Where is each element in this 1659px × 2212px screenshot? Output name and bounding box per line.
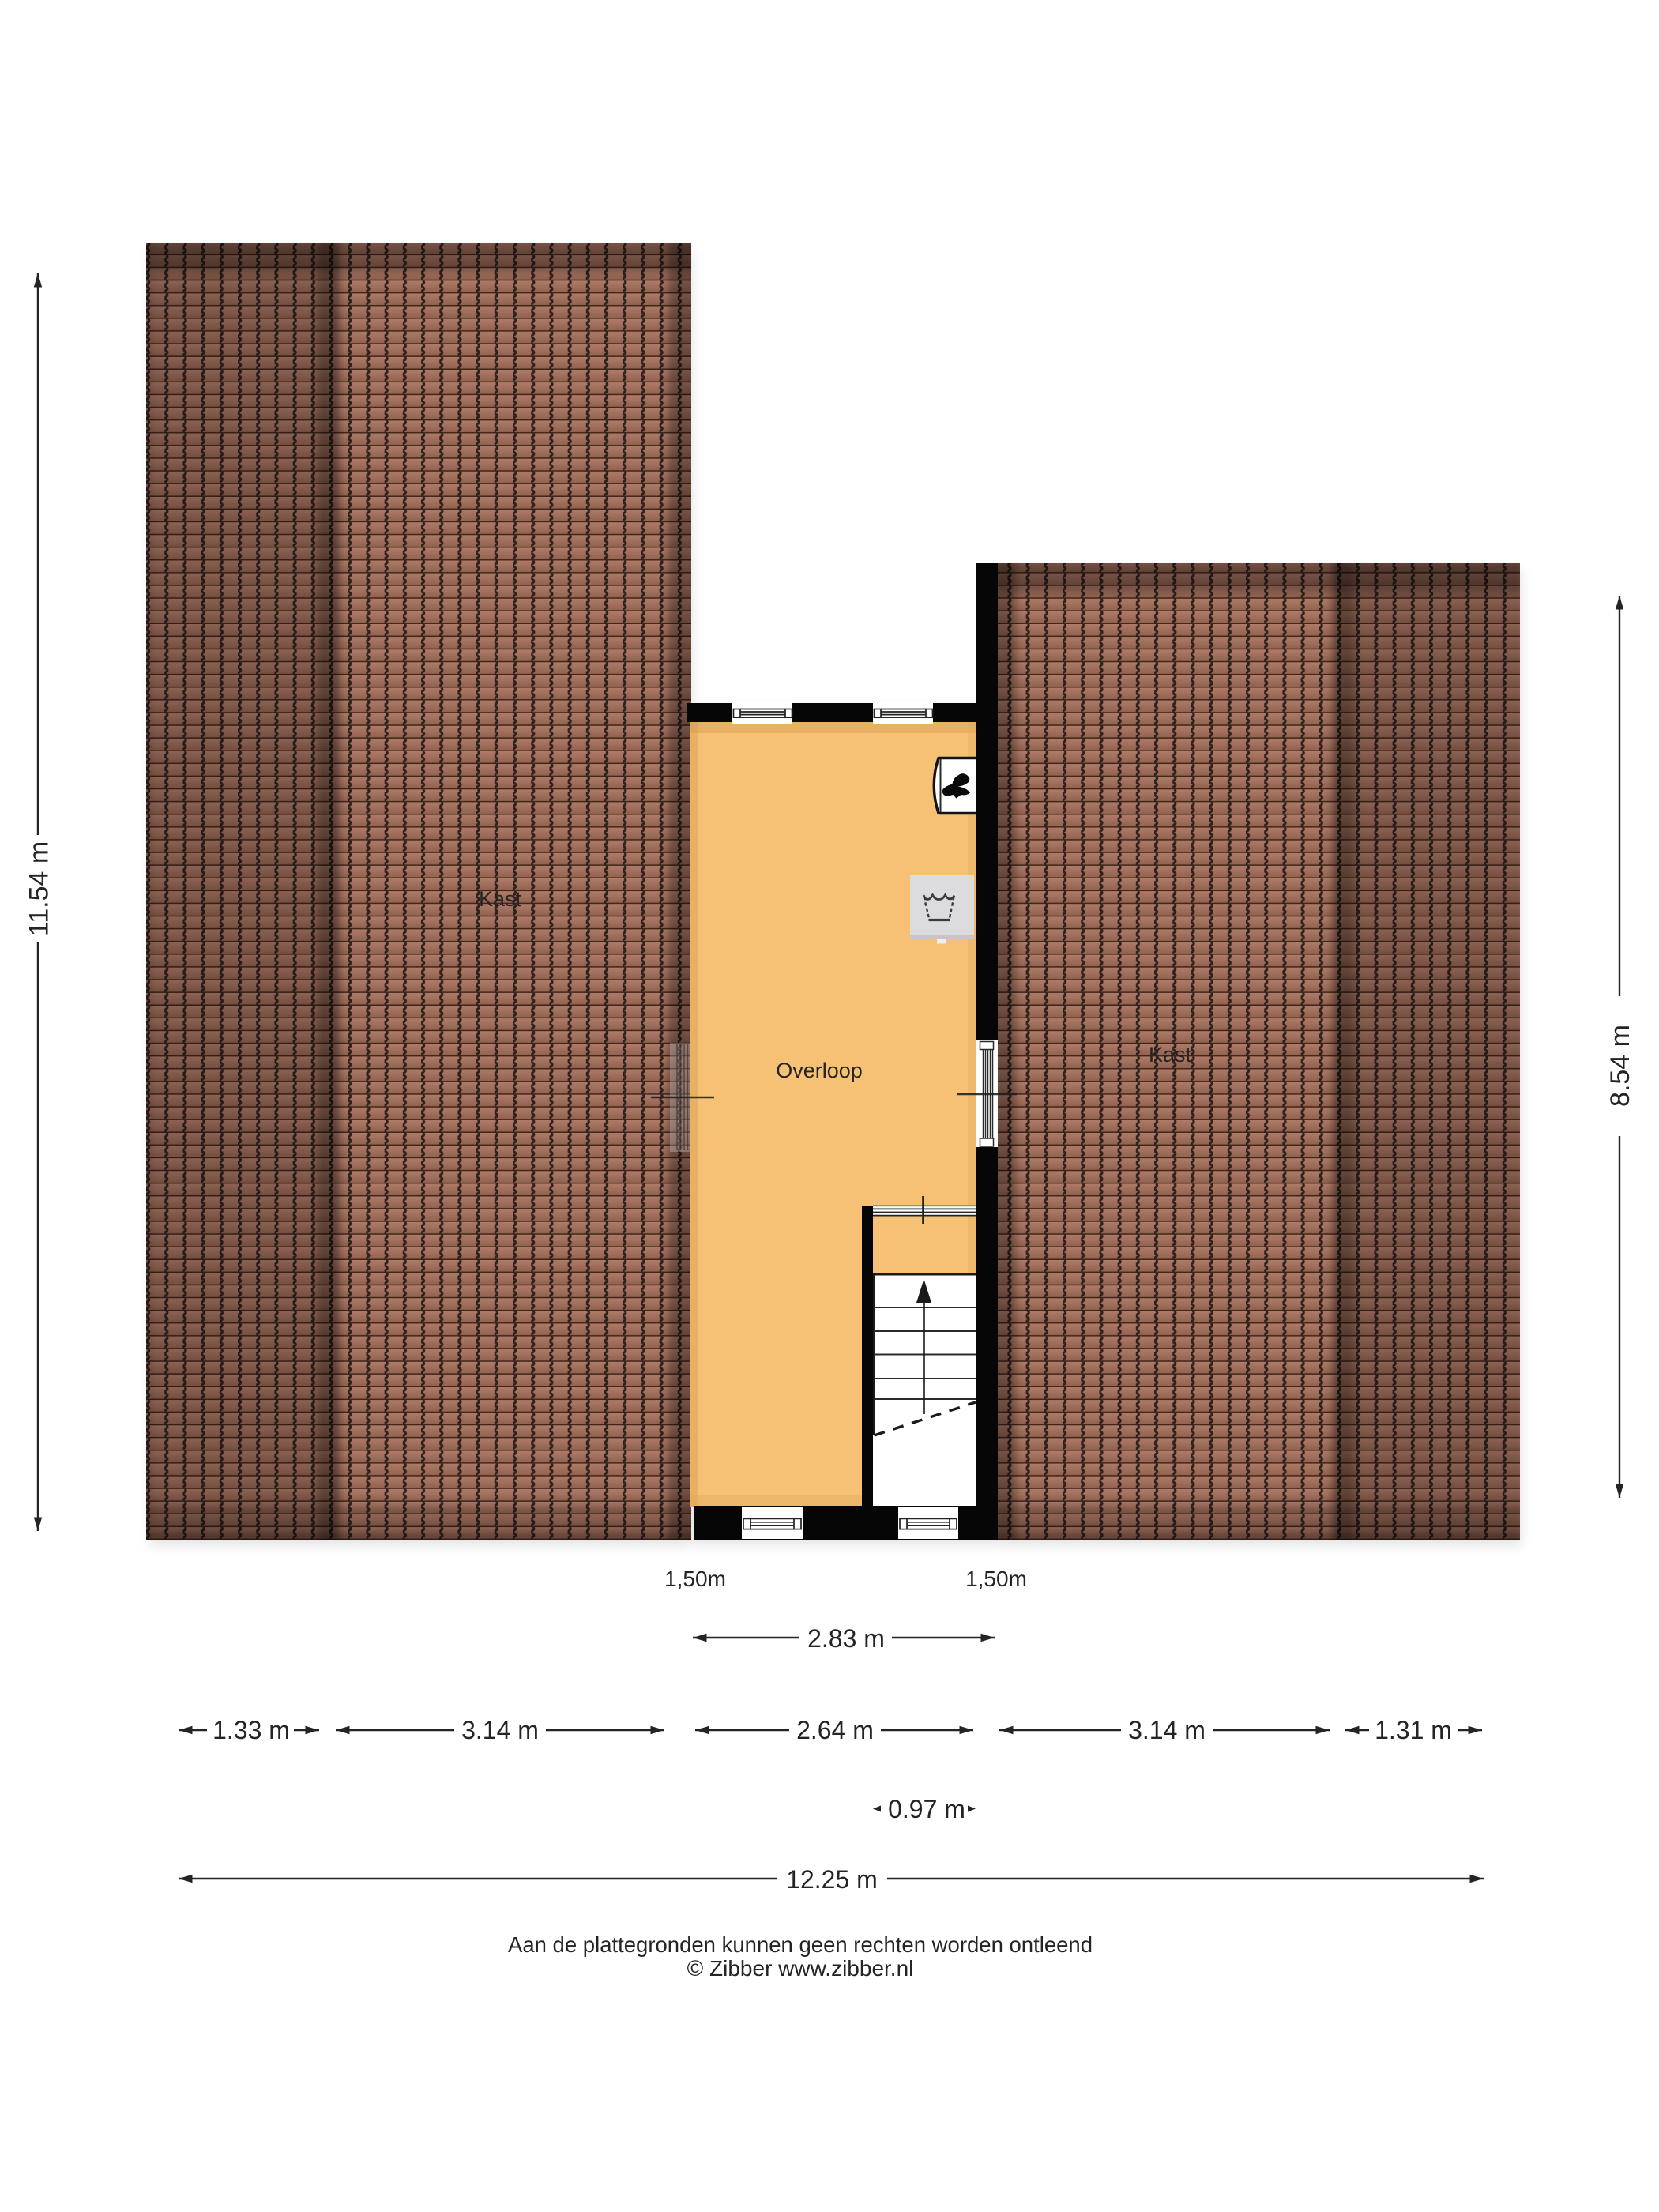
svg-text:3.14 m: 3.14 m (1128, 1716, 1206, 1744)
svg-text:Kast: Kast (1149, 1043, 1192, 1066)
svg-text:1.33 m: 1.33 m (213, 1716, 290, 1744)
svg-text:0.97 m: 0.97 m (888, 1795, 965, 1823)
svg-text:2.83 m: 2.83 m (807, 1624, 885, 1653)
svg-text:11.54 m: 11.54 m (24, 841, 55, 936)
svg-text:© Zibber www.zibber.nl: © Zibber www.zibber.nl (687, 1956, 914, 1981)
svg-text:1,50m: 1,50m (664, 1567, 726, 1591)
svg-text:12.25 m: 12.25 m (786, 1865, 878, 1894)
svg-text:1.31 m: 1.31 m (1375, 1716, 1452, 1744)
svg-text:Aan de plattegronden kunnen ge: Aan de plattegronden kunnen geen rechten… (508, 1932, 1093, 1957)
svg-text:1,50m: 1,50m (965, 1567, 1027, 1591)
svg-text:Kast: Kast (479, 887, 522, 911)
svg-text:Overloop: Overloop (776, 1059, 863, 1082)
svg-text:3.14 m: 3.14 m (461, 1716, 539, 1744)
svg-text:2.64 m: 2.64 m (796, 1716, 874, 1744)
svg-text:8.54 m: 8.54 m (1605, 1025, 1635, 1107)
